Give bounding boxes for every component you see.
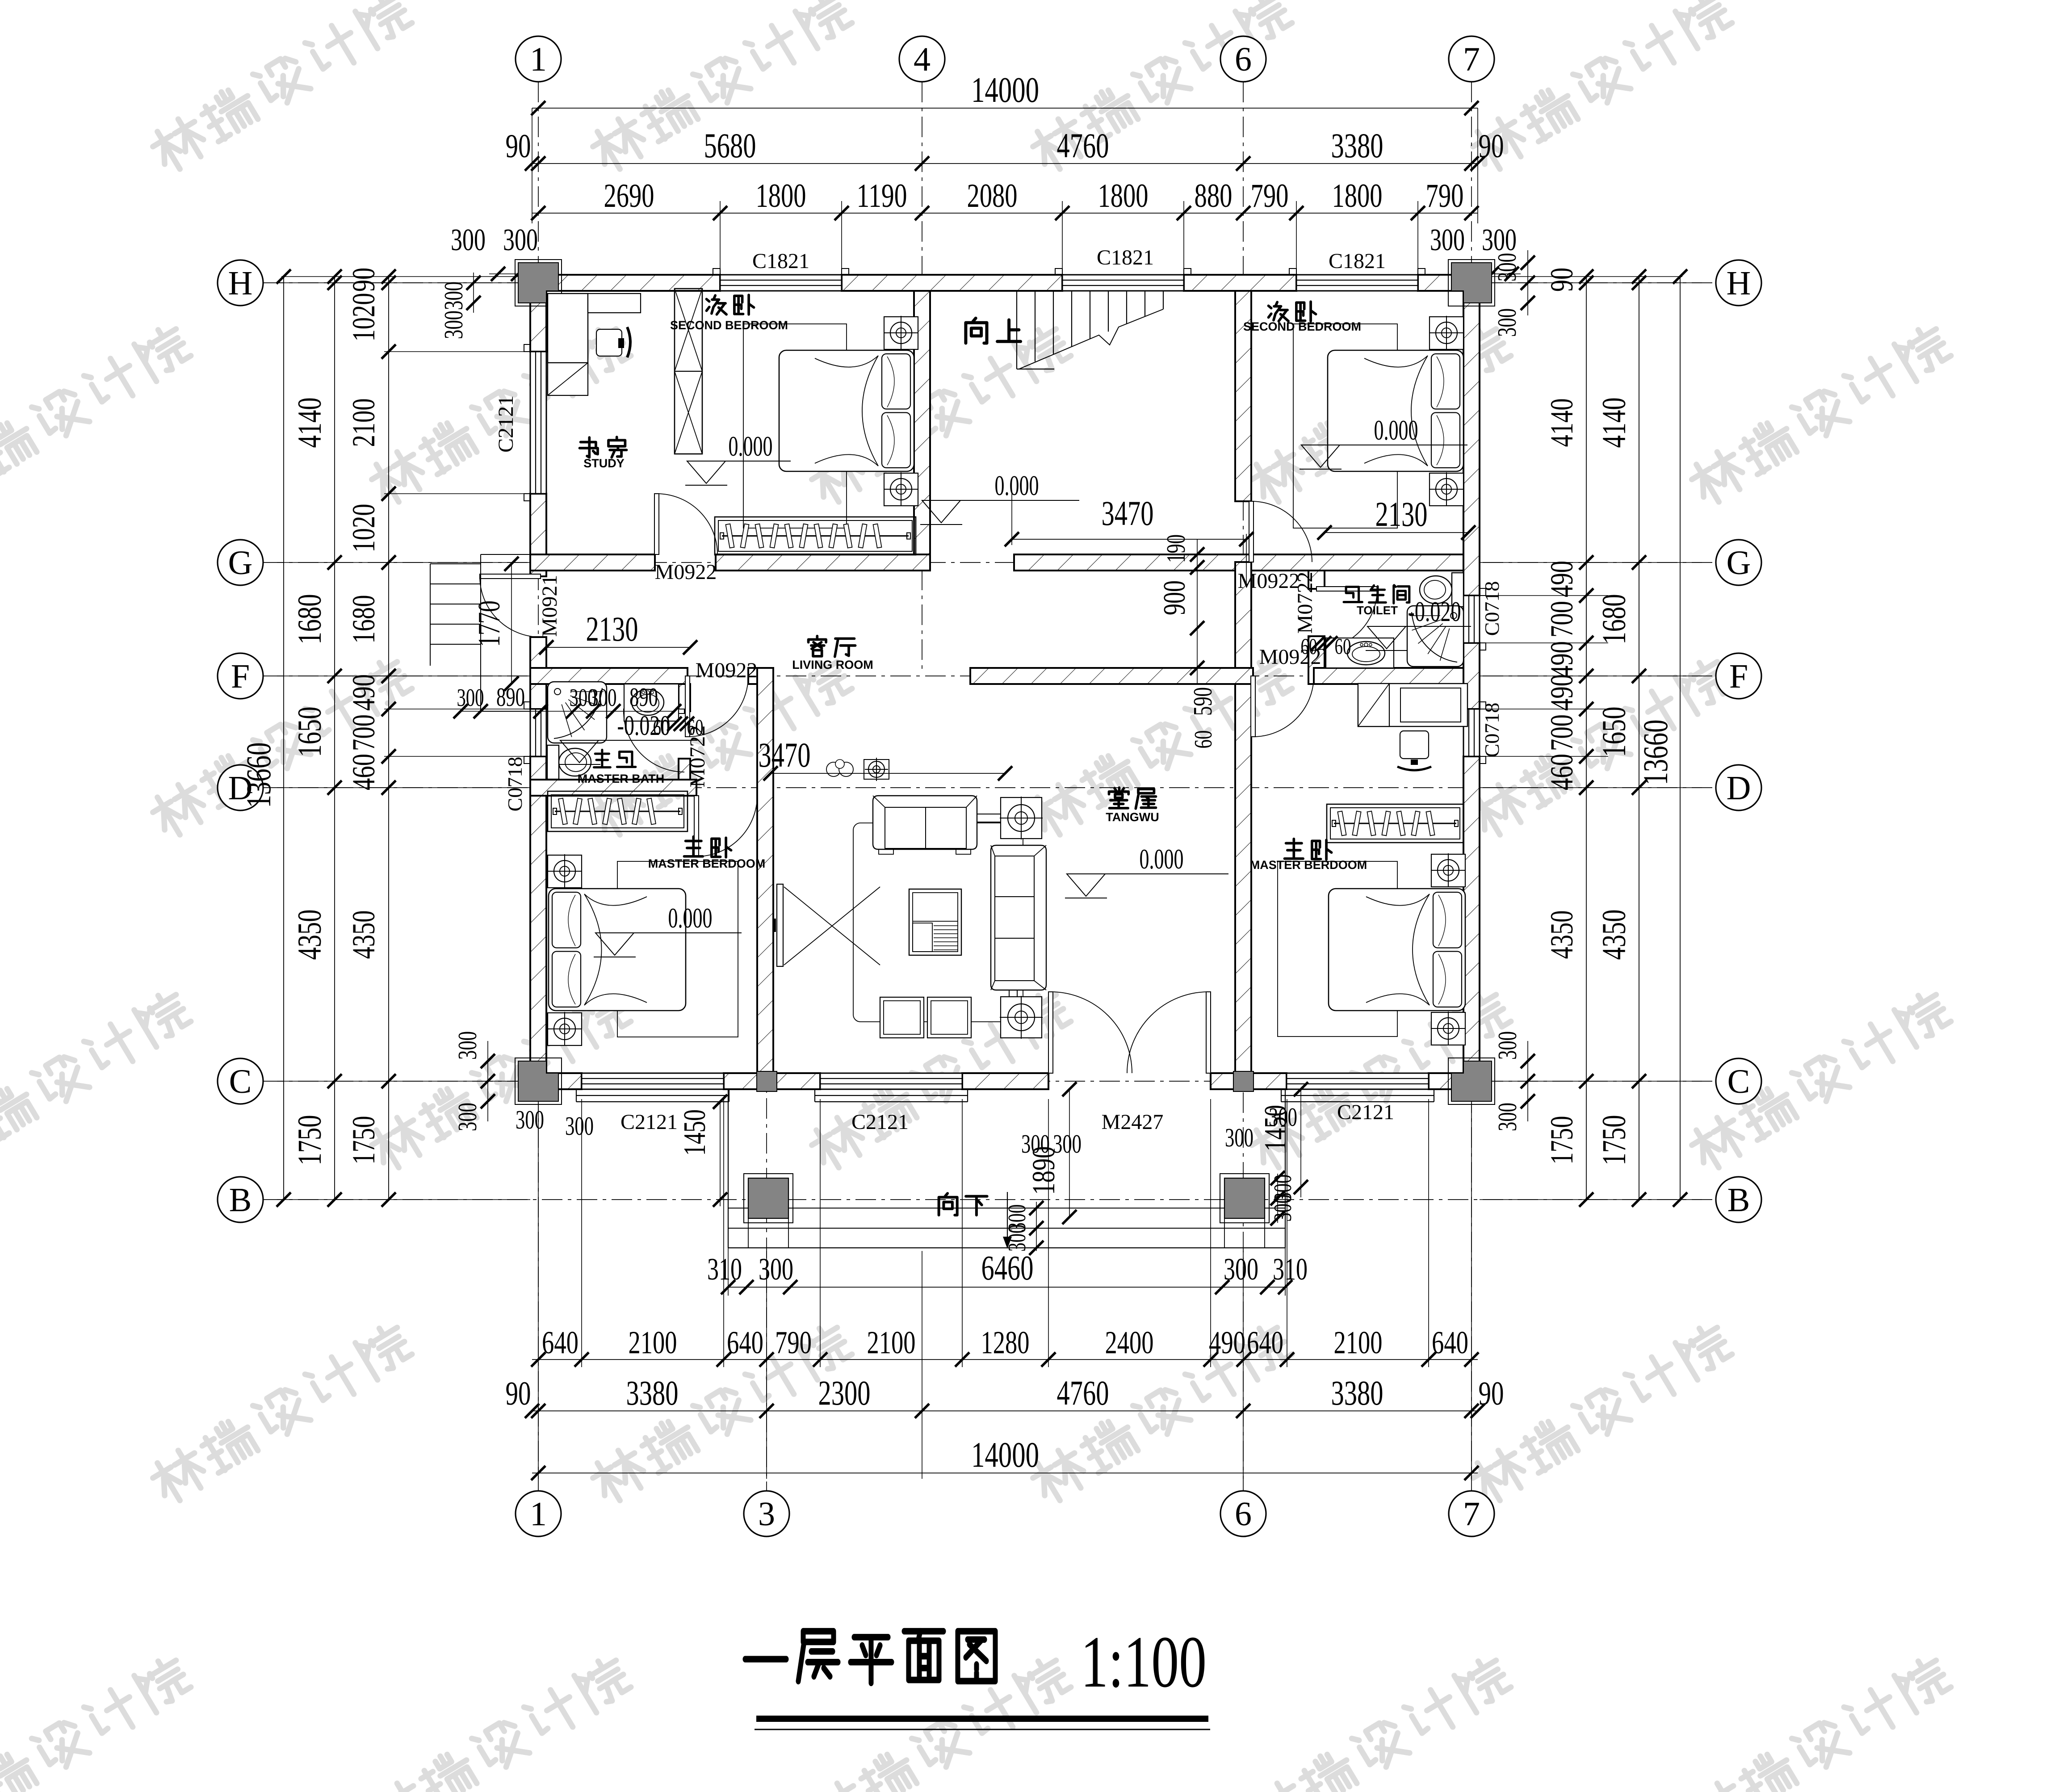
svg-text:300: 300	[1224, 1252, 1258, 1287]
svg-text:M0922: M0922	[1259, 645, 1321, 669]
svg-text:4760: 4760	[1057, 126, 1109, 165]
svg-text:700: 700	[1544, 714, 1580, 751]
svg-text:300: 300	[1269, 1195, 1297, 1222]
svg-text:3380: 3380	[626, 1373, 679, 1412]
svg-text:300: 300	[1430, 223, 1465, 257]
svg-text:300: 300	[516, 1105, 544, 1134]
svg-text:4760: 4760	[1057, 1373, 1109, 1412]
svg-text:2100: 2100	[1334, 1325, 1383, 1360]
svg-text:1770: 1770	[472, 600, 507, 647]
svg-text:MASTER BATH: MASTER BATH	[578, 772, 664, 785]
svg-text:90: 90	[346, 268, 381, 292]
svg-text:C: C	[229, 1063, 252, 1100]
svg-text:TOILET: TOILET	[1357, 604, 1398, 617]
svg-text:1680: 1680	[1596, 594, 1633, 645]
svg-text:2100: 2100	[629, 1325, 677, 1360]
svg-text:13660: 13660	[239, 743, 278, 808]
svg-text:60: 60	[653, 715, 670, 740]
svg-text:300: 300	[590, 684, 617, 712]
svg-text:60: 60	[1190, 730, 1217, 749]
svg-text:SECOND BEDROOM: SECOND BEDROOM	[670, 319, 788, 332]
svg-text:300: 300	[565, 1111, 594, 1141]
svg-text:1800: 1800	[1098, 177, 1149, 214]
svg-text:1750: 1750	[346, 1116, 381, 1165]
svg-text:7: 7	[1463, 41, 1480, 78]
svg-text:640: 640	[1247, 1325, 1283, 1360]
svg-text:1800: 1800	[756, 177, 806, 214]
svg-text:700: 700	[346, 714, 381, 751]
svg-text:1450: 1450	[678, 1109, 712, 1156]
svg-text:C2121: C2121	[620, 1110, 678, 1134]
svg-text:790: 790	[775, 1325, 812, 1360]
svg-text:4350: 4350	[291, 910, 328, 960]
svg-text:190: 190	[1161, 534, 1191, 563]
svg-text:1750: 1750	[1544, 1116, 1580, 1165]
svg-text:H: H	[1727, 264, 1751, 302]
svg-text:6: 6	[1235, 41, 1252, 78]
svg-text:490: 490	[1544, 674, 1580, 711]
svg-text:2100: 2100	[346, 399, 381, 447]
svg-text:4350: 4350	[1596, 910, 1633, 960]
svg-text:4140: 4140	[1596, 398, 1633, 448]
svg-text:C1821: C1821	[1329, 249, 1386, 273]
svg-text:300: 300	[439, 281, 468, 310]
svg-text:300: 300	[1003, 1225, 1031, 1252]
svg-text:90: 90	[506, 1375, 531, 1412]
svg-text:4: 4	[914, 41, 931, 78]
svg-text:H: H	[228, 264, 253, 302]
svg-text:0.000: 0.000	[1374, 414, 1418, 446]
svg-text:F: F	[231, 658, 250, 695]
svg-text:0.000: 0.000	[729, 430, 773, 462]
svg-text:2080: 2080	[967, 177, 1018, 214]
svg-text:B: B	[229, 1181, 252, 1219]
svg-text:4140: 4140	[291, 398, 328, 448]
svg-text:880: 880	[1195, 177, 1233, 214]
svg-text:640: 640	[542, 1325, 579, 1360]
svg-text:M0922: M0922	[696, 659, 758, 682]
svg-text:300: 300	[1492, 1103, 1522, 1131]
svg-text:C: C	[1727, 1063, 1750, 1100]
svg-text:590: 590	[1188, 687, 1217, 716]
svg-text:2130: 2130	[586, 609, 638, 648]
svg-text:14000: 14000	[971, 1435, 1039, 1475]
svg-text:1: 1	[530, 41, 547, 78]
svg-text:1680: 1680	[291, 594, 328, 645]
svg-text:1750: 1750	[291, 1115, 328, 1166]
svg-text:3380: 3380	[1331, 1373, 1383, 1412]
svg-text:3470: 3470	[1102, 494, 1154, 533]
svg-text:300: 300	[1225, 1123, 1253, 1152]
svg-text:SECOND BEDROOM: SECOND BEDROOM	[1243, 320, 1361, 333]
svg-text:300: 300	[453, 1031, 482, 1060]
svg-text:4350: 4350	[1544, 911, 1580, 959]
svg-text:700: 700	[1544, 601, 1580, 638]
svg-text:890: 890	[496, 682, 525, 712]
svg-text:M0922: M0922	[655, 560, 717, 584]
svg-text:300: 300	[759, 1252, 793, 1287]
svg-text:C0718: C0718	[1480, 703, 1503, 758]
svg-text:640: 640	[727, 1325, 763, 1360]
svg-text:D: D	[1727, 769, 1751, 807]
svg-text:6460: 6460	[981, 1248, 1034, 1287]
svg-text:90: 90	[506, 128, 531, 165]
svg-text:TANGWU: TANGWU	[1106, 810, 1159, 824]
svg-text:C0718: C0718	[1480, 581, 1503, 636]
svg-text:F: F	[1729, 658, 1748, 695]
svg-text:1:100: 1:100	[1081, 1621, 1207, 1703]
svg-text:C2121: C2121	[1337, 1100, 1394, 1124]
svg-text:MASTER BERDOOM: MASTER BERDOOM	[1250, 858, 1367, 872]
svg-text:C2121: C2121	[494, 395, 518, 453]
svg-text:90: 90	[1479, 1375, 1504, 1412]
svg-text:1650: 1650	[291, 707, 328, 757]
svg-text:0.000: 0.000	[995, 470, 1039, 501]
svg-text:640: 640	[1432, 1325, 1468, 1360]
svg-text:STUDY: STUDY	[583, 457, 625, 470]
svg-text:300: 300	[1492, 1031, 1522, 1060]
svg-text:490: 490	[1544, 561, 1580, 597]
svg-text:4350: 4350	[346, 911, 381, 959]
svg-text:300: 300	[1492, 253, 1522, 281]
svg-text:310: 310	[707, 1252, 742, 1287]
svg-text:B: B	[1727, 1181, 1750, 1219]
svg-text:C2121: C2121	[851, 1110, 909, 1134]
svg-text:490: 490	[1544, 641, 1580, 678]
svg-text:G: G	[228, 544, 253, 582]
svg-text:13660: 13660	[1636, 720, 1675, 785]
svg-text:2100: 2100	[867, 1325, 916, 1360]
svg-text:2300: 2300	[818, 1373, 871, 1412]
svg-text:-0.020: -0.020	[1408, 596, 1461, 627]
svg-text:300: 300	[1482, 223, 1517, 257]
svg-text:5680: 5680	[704, 126, 756, 165]
svg-text:3470: 3470	[759, 735, 811, 774]
svg-text:460: 460	[346, 754, 381, 790]
svg-text:1680: 1680	[346, 595, 381, 644]
svg-text:300: 300	[439, 311, 468, 339]
svg-text:MASTER BERDOOM: MASTER BERDOOM	[648, 857, 766, 870]
svg-text:790: 790	[1251, 177, 1289, 214]
svg-text:300: 300	[1053, 1129, 1082, 1158]
svg-text:1280: 1280	[981, 1325, 1030, 1360]
svg-text:900: 900	[1157, 580, 1192, 615]
svg-text:300: 300	[457, 684, 484, 712]
svg-text:90: 90	[1544, 268, 1580, 292]
svg-text:300: 300	[503, 223, 538, 257]
svg-text:0.000: 0.000	[1140, 843, 1184, 875]
svg-text:M2427: M2427	[1102, 1110, 1164, 1134]
svg-text:3380: 3380	[1331, 126, 1383, 165]
svg-text:2130: 2130	[1375, 495, 1428, 533]
svg-text:C1821: C1821	[752, 249, 809, 273]
svg-text:300: 300	[1492, 308, 1522, 337]
svg-text:1750: 1750	[1596, 1115, 1633, 1166]
svg-text:3: 3	[758, 1495, 775, 1533]
svg-text:2690: 2690	[604, 177, 654, 214]
svg-text:300: 300	[1021, 1129, 1050, 1158]
svg-text:1650: 1650	[1596, 707, 1633, 757]
svg-text:490: 490	[346, 674, 381, 711]
svg-text:0.000: 0.000	[668, 902, 713, 934]
svg-text:M0922: M0922	[1238, 569, 1300, 593]
svg-text:4140: 4140	[1544, 399, 1580, 447]
svg-text:790: 790	[1426, 177, 1464, 214]
svg-text:310: 310	[1273, 1252, 1308, 1287]
svg-text:14000: 14000	[971, 70, 1039, 110]
svg-text:M0921: M0921	[538, 575, 562, 637]
svg-text:2400: 2400	[1105, 1325, 1154, 1360]
svg-text:1800: 1800	[1332, 177, 1383, 214]
svg-text:890: 890	[629, 682, 658, 712]
svg-text:1: 1	[530, 1495, 547, 1533]
svg-text:1020: 1020	[346, 504, 381, 553]
svg-text:460: 460	[1544, 754, 1580, 790]
svg-text:300: 300	[451, 223, 486, 257]
svg-text:1020: 1020	[346, 293, 381, 342]
svg-text:7: 7	[1463, 1495, 1480, 1533]
svg-text:C0718: C0718	[503, 757, 526, 812]
svg-text:6: 6	[1235, 1495, 1252, 1533]
svg-text:M0722: M0722	[1293, 572, 1317, 634]
svg-text:C1821: C1821	[1097, 246, 1154, 269]
svg-text:490: 490	[1209, 1325, 1245, 1360]
svg-text:1190: 1190	[857, 177, 907, 214]
svg-text:300: 300	[453, 1103, 482, 1131]
svg-text:G: G	[1727, 544, 1751, 582]
svg-text:90: 90	[1479, 128, 1504, 165]
svg-text:LIVING ROOM: LIVING ROOM	[792, 658, 873, 671]
svg-text:300: 300	[1269, 1102, 1297, 1132]
svg-text:M0722: M0722	[686, 726, 709, 788]
